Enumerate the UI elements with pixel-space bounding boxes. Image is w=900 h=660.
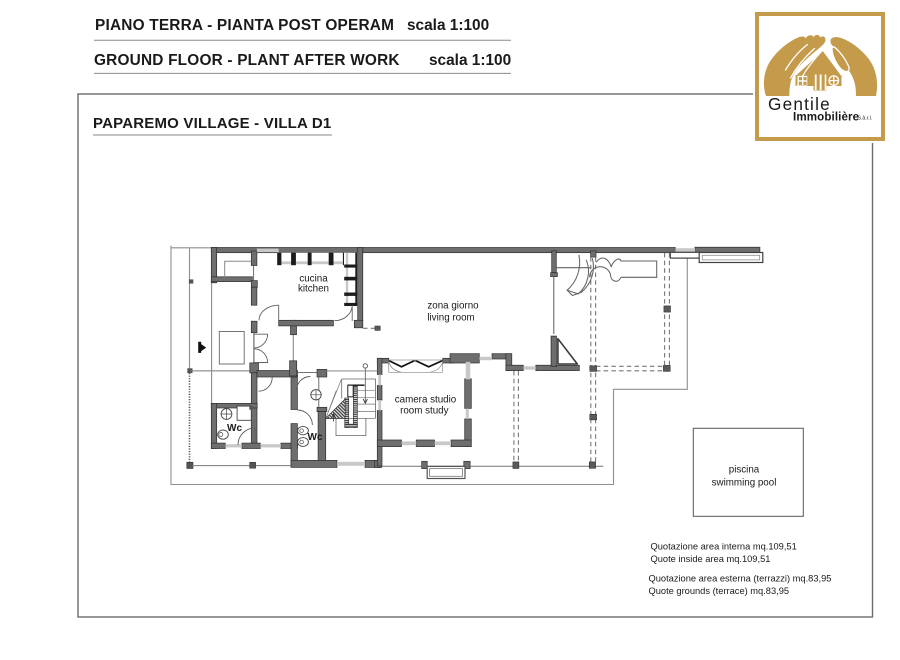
svg-text:PIANO TERRA - PIANTA POST OP: PIANO TERRA - PIANTA POST OPERAM bbox=[95, 17, 394, 34]
svg-text:S.à.r.l.: S.à.r.l. bbox=[858, 116, 873, 122]
svg-text:Wc: Wc bbox=[308, 432, 323, 443]
svg-text:Quote inside area mq.109,51: Quote inside area mq.109,51 bbox=[651, 554, 771, 564]
svg-text:kitchen: kitchen bbox=[298, 284, 329, 295]
svg-text:Quote grounds (terrace) mq.83,: Quote grounds (terrace) mq.83,95 bbox=[649, 586, 790, 596]
svg-text:scala 1:100: scala 1:100 bbox=[429, 52, 511, 69]
svg-text:scala 1:100: scala 1:100 bbox=[407, 17, 489, 34]
svg-text:room study: room study bbox=[400, 406, 449, 417]
svg-text:piscina: piscina bbox=[729, 465, 760, 476]
svg-text:GROUND FLOOR - PLANT AFTER W: GROUND FLOOR - PLANT AFTER WORK bbox=[94, 52, 400, 69]
svg-text:PAPAREMO VILLAGE - VILLA D1: PAPAREMO VILLAGE - VILLA D1 bbox=[93, 115, 331, 132]
svg-text:Immobilière: Immobilière bbox=[793, 111, 860, 124]
svg-text:Quotazione area esterna (terra: Quotazione area esterna (terrazzi) mq.83… bbox=[649, 574, 832, 584]
svg-text:camera studio: camera studio bbox=[395, 395, 457, 406]
svg-text:zona giorno: zona giorno bbox=[427, 301, 479, 312]
svg-text:living room: living room bbox=[427, 313, 474, 324]
svg-text:Quotazione area interna mq.109: Quotazione area interna mq.109,51 bbox=[651, 542, 797, 552]
svg-text:swimming pool: swimming pool bbox=[712, 478, 777, 489]
svg-text:Wc: Wc bbox=[227, 423, 242, 434]
